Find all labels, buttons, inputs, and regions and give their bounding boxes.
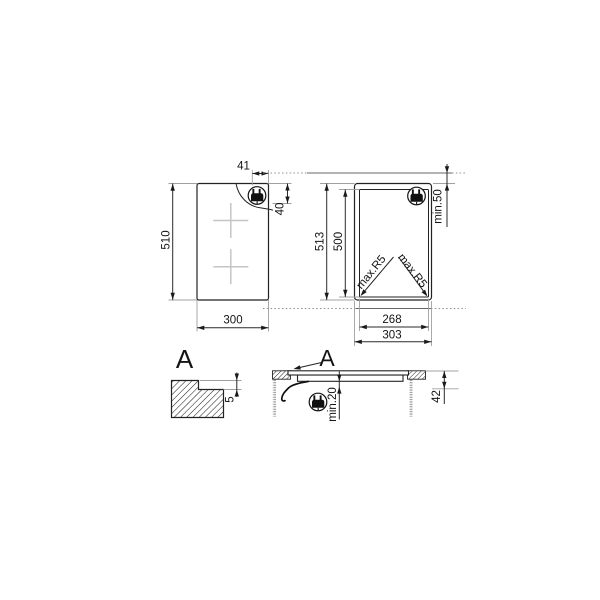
dim-41-label: 41 xyxy=(237,161,250,173)
dim-500-label: 500 xyxy=(333,232,345,251)
worktop-section-right xyxy=(408,371,426,379)
cabinet-side-panel xyxy=(409,379,413,416)
dim-min20-label: min.20 xyxy=(327,387,339,422)
dim-5-label: 5 xyxy=(225,396,237,402)
dim-42-label: 42 xyxy=(431,390,443,403)
power-plug-icon xyxy=(408,187,426,205)
power-plug-icon xyxy=(248,187,266,205)
hob-glass-section xyxy=(288,371,409,375)
dim-300-label: 300 xyxy=(223,315,242,327)
installation-drawing: 510 300 41 40 xyxy=(0,0,600,600)
power-plug-icon xyxy=(309,393,327,411)
section-a-label: A xyxy=(319,345,335,371)
dim-303-label: 303 xyxy=(382,329,401,341)
cabinet-side-panel xyxy=(273,379,277,416)
dim-min50-label: min.50 xyxy=(433,189,445,224)
canvas-background xyxy=(0,0,600,600)
dim-510-label: 510 xyxy=(161,230,173,249)
dim-40-label: 40 xyxy=(275,203,287,216)
detail-a-title: A xyxy=(176,344,194,374)
dim-513-label: 513 xyxy=(314,232,326,251)
dim-268-label: 268 xyxy=(382,314,401,326)
hob-body-section xyxy=(298,375,404,381)
